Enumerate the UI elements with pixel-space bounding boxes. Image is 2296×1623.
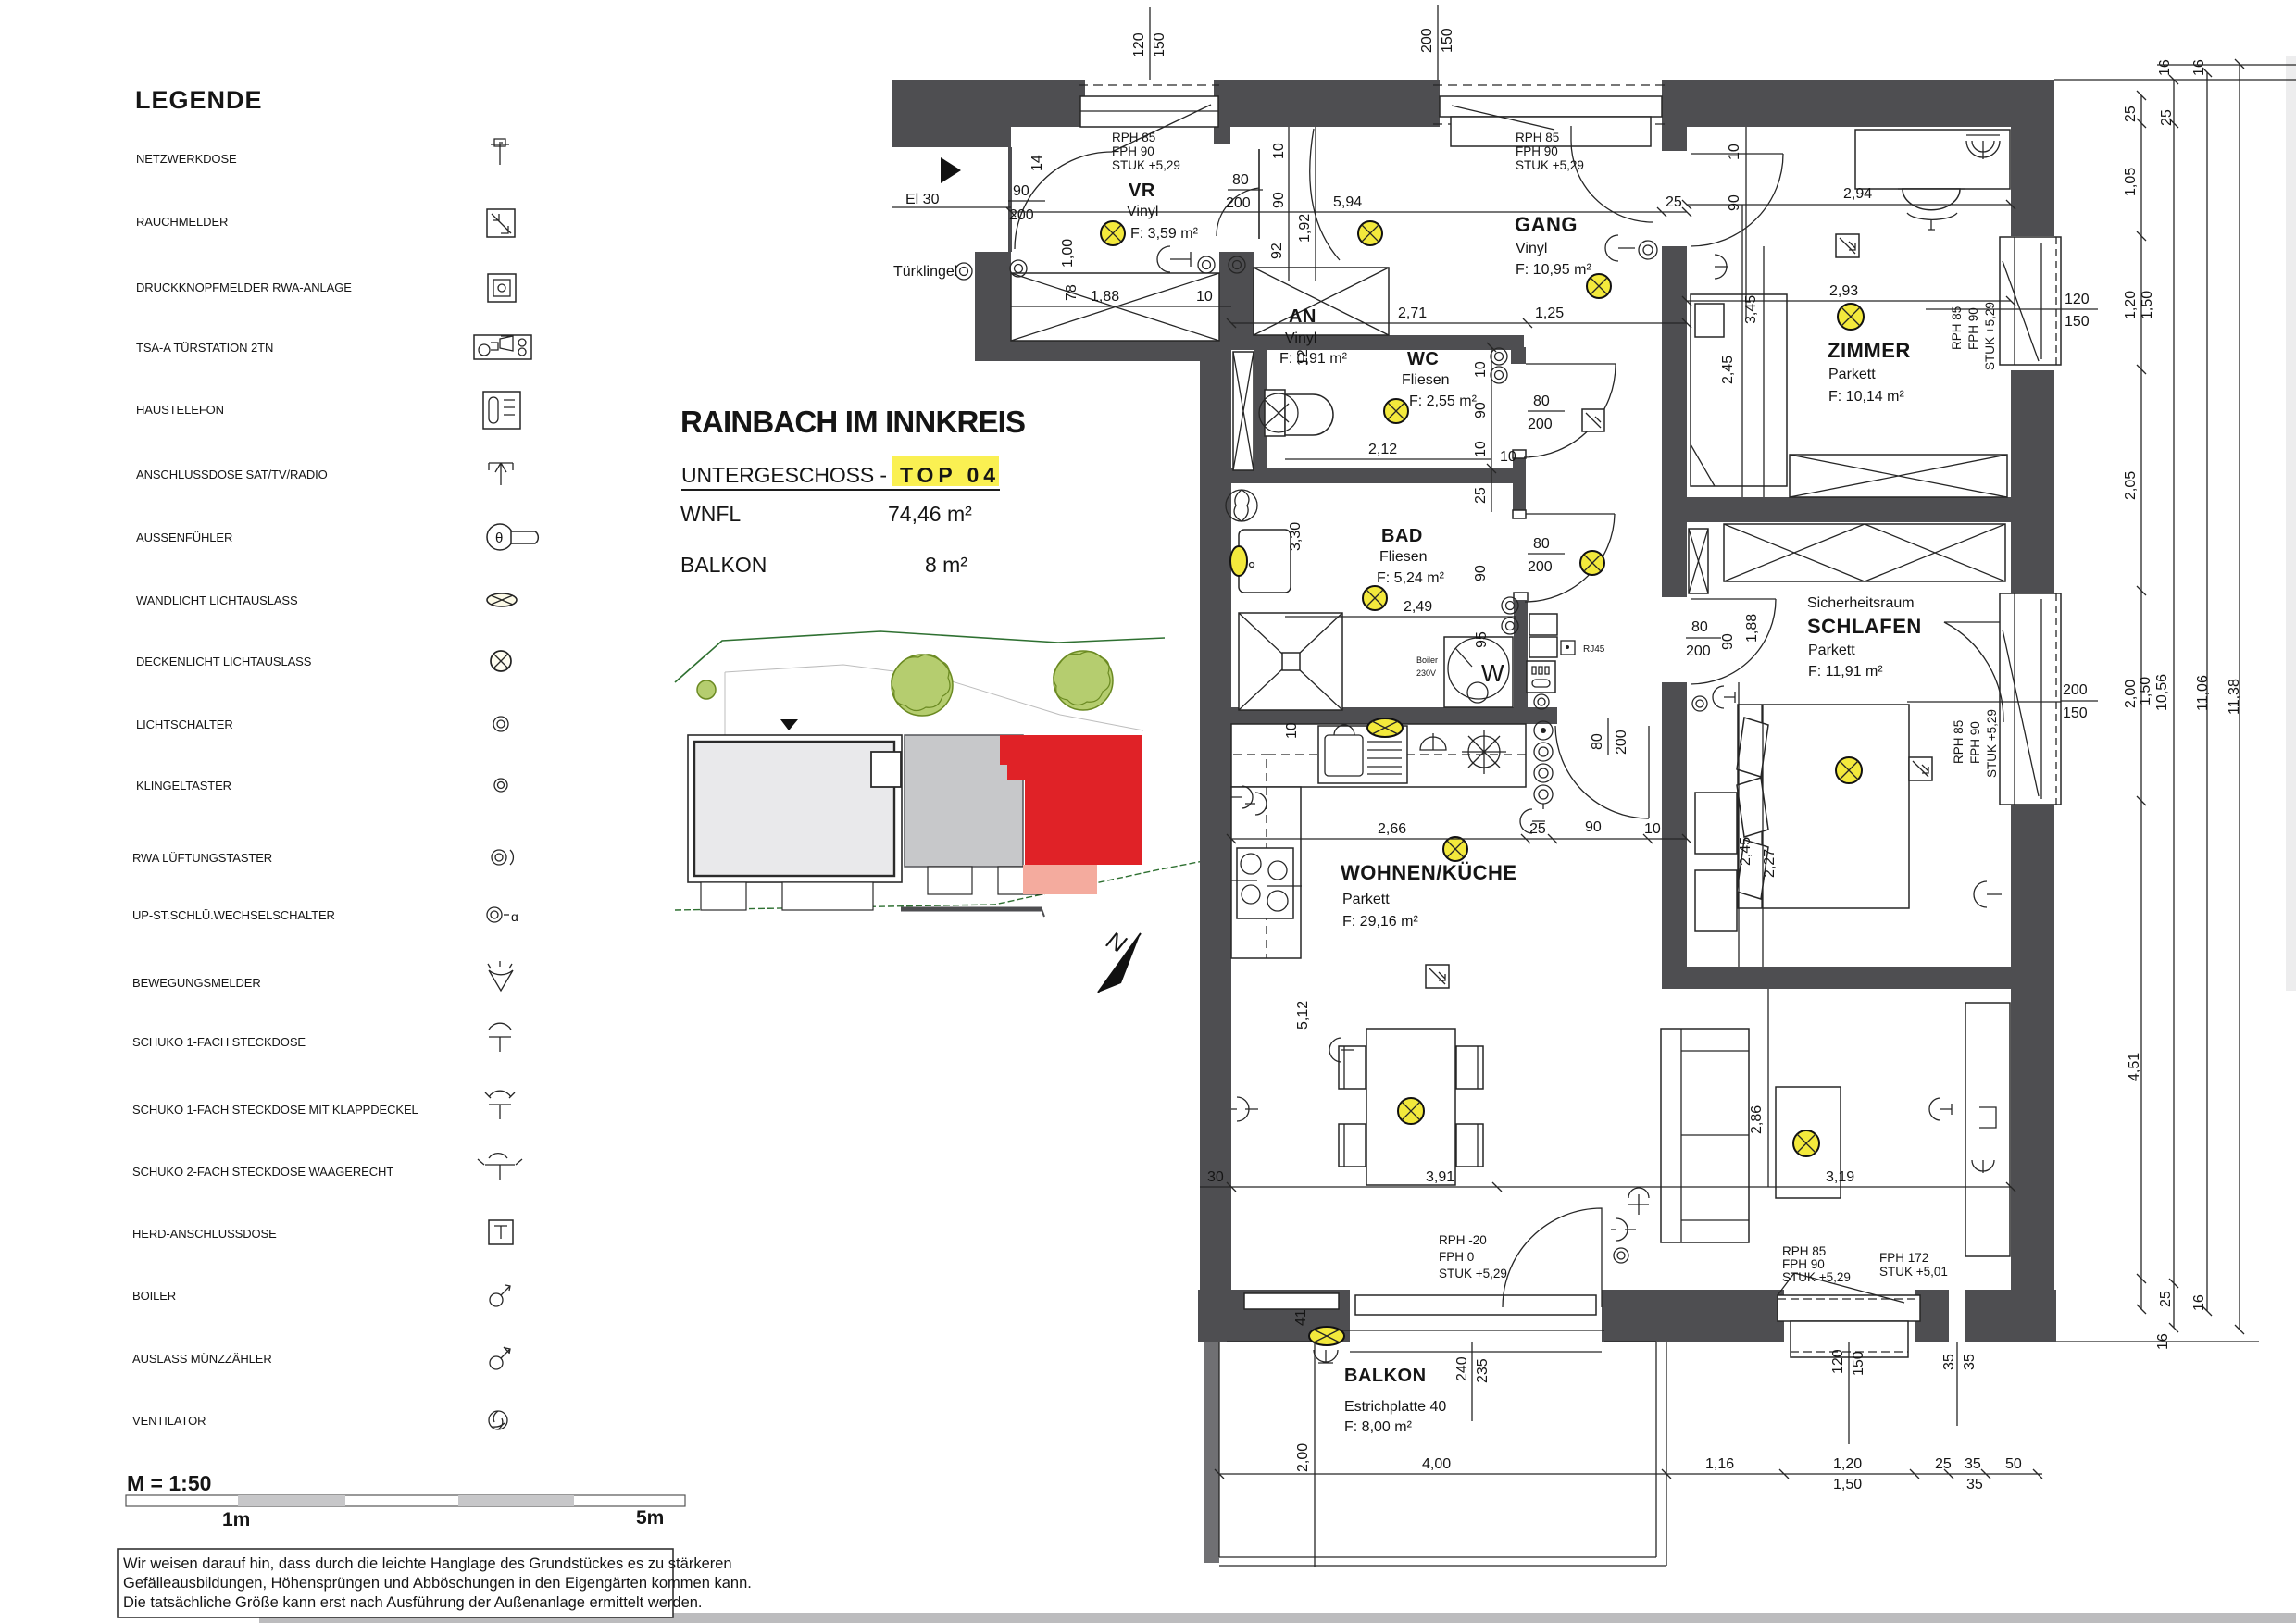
svg-text:150: 150: [1152, 32, 1167, 57]
svg-text:95: 95: [1474, 631, 1490, 648]
svg-text:FPH 90: FPH 90: [1968, 721, 1982, 764]
svg-text:RPH 85: RPH 85: [1950, 306, 1964, 350]
svg-text:HAUSTELEFON: HAUSTELEFON: [136, 403, 224, 417]
svg-text:3,30: 3,30: [1288, 522, 1304, 551]
svg-text:10: 10: [1727, 144, 1742, 160]
svg-text:VENTILATOR: VENTILATOR: [132, 1414, 206, 1428]
svg-text:74,46 m²: 74,46 m²: [888, 502, 972, 526]
svg-text:Vinyl: Vinyl: [1127, 204, 1158, 219]
svg-text:WNFL: WNFL: [680, 502, 741, 526]
svg-text:80: 80: [1232, 172, 1249, 188]
svg-text:Estrichplatte 40: Estrichplatte 40: [1344, 1399, 1446, 1415]
svg-text:90: 90: [1585, 819, 1602, 835]
svg-text:35: 35: [1966, 1477, 1983, 1492]
svg-text:1,25: 1,25: [1535, 306, 1564, 321]
svg-text:2,93: 2,93: [1829, 283, 1858, 299]
svg-text:FPH 172: FPH 172: [1879, 1251, 1928, 1265]
svg-text:STUK +5,29: STUK +5,29: [1112, 158, 1180, 172]
svg-text:2,66: 2,66: [1378, 821, 1406, 837]
svg-text:1,00: 1,00: [1060, 239, 1076, 268]
svg-text:1,20: 1,20: [2123, 291, 2139, 319]
svg-text:GANG: GANG: [1515, 213, 1578, 236]
svg-text:Vinyl: Vinyl: [1285, 331, 1316, 346]
svg-text:25: 25: [2159, 109, 2175, 126]
svg-text:Fliesen: Fliesen: [1379, 549, 1428, 565]
svg-text:RPH 85: RPH 85: [1952, 720, 1965, 764]
svg-text:1,05: 1,05: [2123, 168, 2139, 196]
svg-text:1,20: 1,20: [1833, 1456, 1862, 1472]
svg-text:Parkett: Parkett: [1828, 367, 1876, 382]
svg-text:SCHUKO 2-FACH STECKDOSE WAAGER: SCHUKO 2-FACH STECKDOSE WAAGERECHT: [132, 1165, 393, 1179]
svg-text:F: 0,91 m²: F: 0,91 m²: [1279, 351, 1348, 367]
svg-text:92: 92: [1269, 243, 1285, 259]
svg-text:M = 1:50: M = 1:50: [127, 1471, 211, 1495]
svg-text:LEGENDE: LEGENDE: [135, 86, 263, 114]
svg-text:W: W: [1481, 659, 1504, 687]
svg-text:STUK +5,29: STUK +5,29: [1983, 302, 1997, 370]
svg-text:2,45: 2,45: [1738, 837, 1753, 866]
svg-text:WOHNEN/KÜCHE: WOHNEN/KÜCHE: [1341, 861, 1517, 884]
svg-text:2,71: 2,71: [1398, 306, 1427, 321]
svg-text:RPH 85: RPH 85: [1112, 131, 1155, 144]
svg-text:90: 90: [1013, 183, 1029, 199]
svg-text:θ: θ: [495, 531, 503, 546]
svg-text:25: 25: [2158, 1291, 2174, 1307]
svg-text:F: 3,59 m²: F: 3,59 m²: [1130, 226, 1199, 242]
svg-text:200: 200: [1419, 28, 1435, 53]
svg-text:STUK +5,01: STUK +5,01: [1879, 1265, 1948, 1279]
svg-text:35: 35: [1965, 1456, 1981, 1472]
svg-text:ɑ: ɑ: [511, 909, 518, 924]
svg-text:10: 10: [1473, 361, 1489, 378]
svg-text:F: 2,55 m²: F: 2,55 m²: [1409, 393, 1478, 409]
svg-text:3,91: 3,91: [1426, 1169, 1454, 1185]
svg-text:SCHUKO 1-FACH STECKDOSE MIT KL: SCHUKO 1-FACH STECKDOSE MIT KLAPPDECKEL: [132, 1103, 418, 1117]
svg-text:Die tatsächliche Größe kann er: Die tatsächliche Größe kann erst nach Au…: [123, 1594, 703, 1611]
svg-text:1,88: 1,88: [1091, 289, 1119, 305]
svg-text:Boiler: Boiler: [1416, 655, 1438, 665]
svg-text:78: 78: [1064, 284, 1079, 301]
svg-text:ANSCHLUSSDOSE SAT/TV/RADIO: ANSCHLUSSDOSE SAT/TV/RADIO: [136, 468, 328, 481]
svg-text:200: 200: [1009, 207, 1034, 223]
svg-text:10: 10: [1196, 289, 1213, 305]
svg-text:Fliesen: Fliesen: [1402, 372, 1450, 388]
svg-text:25: 25: [1666, 194, 1682, 210]
svg-text:90: 90: [1720, 633, 1736, 650]
svg-text:2,27: 2,27: [1762, 849, 1778, 878]
svg-text:LICHTSCHALTER: LICHTSCHALTER: [136, 718, 233, 731]
svg-text:2,12: 2,12: [1368, 442, 1397, 457]
svg-text:STUK +5,29: STUK +5,29: [1516, 158, 1584, 172]
svg-text:F: 10,14 m²: F: 10,14 m²: [1828, 389, 1904, 405]
svg-text:RJ45: RJ45: [1583, 644, 1605, 655]
svg-text:F: 11,91 m²: F: 11,91 m²: [1808, 664, 1883, 680]
svg-text:200: 200: [1528, 417, 1553, 432]
svg-text:F: 5,24 m²: F: 5,24 m²: [1377, 570, 1445, 586]
svg-text:HERD-ANSCHLUSSDOSE: HERD-ANSCHLUSSDOSE: [132, 1227, 277, 1241]
svg-text:El 30: El 30: [905, 192, 940, 207]
svg-text:120: 120: [1131, 32, 1147, 57]
svg-text:10: 10: [1473, 441, 1489, 457]
svg-text:4,51: 4,51: [2127, 1053, 2142, 1081]
svg-text:TSA-A TÜRSTATION 2TN: TSA-A TÜRSTATION 2TN: [136, 341, 273, 355]
svg-text:2,86: 2,86: [1749, 1105, 1765, 1134]
svg-text:WANDLICHT LICHTAUSLASS: WANDLICHT LICHTAUSLASS: [136, 593, 298, 607]
svg-text:5,94: 5,94: [1333, 194, 1362, 210]
svg-text:BALKON: BALKON: [680, 553, 767, 577]
svg-text:16: 16: [2157, 59, 2173, 76]
svg-text:F: 29,16 m²: F: 29,16 m²: [1342, 914, 1418, 930]
svg-text:80: 80: [1691, 619, 1708, 635]
svg-text:35: 35: [1962, 1354, 1978, 1370]
svg-text:STUK +5,29: STUK +5,29: [1985, 709, 1999, 778]
svg-text:BALKON: BALKON: [1344, 1366, 1427, 1386]
svg-text:Wir weisen darauf hin, dass du: Wir weisen darauf hin, dass durch die le…: [123, 1555, 732, 1572]
svg-text:UNTERGESCHOSS -: UNTERGESCHOSS -: [681, 463, 887, 487]
svg-text:240: 240: [1454, 1356, 1470, 1381]
svg-text:90: 90: [1473, 565, 1489, 581]
svg-text:BAD: BAD: [1381, 526, 1423, 546]
svg-text:FPH 90: FPH 90: [1782, 1257, 1825, 1271]
svg-text:FPH 90: FPH 90: [1516, 144, 1558, 158]
svg-text:2,00: 2,00: [1295, 1443, 1311, 1472]
svg-text:10: 10: [1271, 143, 1287, 159]
svg-text:UP-ST.SCHLÜ.WECHSELSCHALTER: UP-ST.SCHLÜ.WECHSELSCHALTER: [132, 908, 335, 922]
svg-text:41: 41: [1293, 1309, 1309, 1326]
svg-text:80: 80: [1590, 733, 1605, 750]
svg-text:25: 25: [1473, 487, 1489, 504]
svg-text:50: 50: [2005, 1456, 2022, 1472]
svg-text:VR: VR: [1129, 181, 1155, 201]
svg-text:150: 150: [2065, 314, 2090, 330]
svg-text:F: 10,95 m²: F: 10,95 m²: [1516, 262, 1591, 278]
svg-text:1,16: 1,16: [1705, 1456, 1734, 1472]
svg-text:25: 25: [1935, 1456, 1952, 1472]
svg-text:1,50: 1,50: [2138, 677, 2153, 705]
svg-text:2,49: 2,49: [1404, 599, 1432, 615]
svg-text:Parkett: Parkett: [1808, 643, 1855, 658]
svg-text:14: 14: [1029, 155, 1045, 171]
svg-text:Sicherheitsraum: Sicherheitsraum: [1807, 595, 1915, 611]
svg-text:200: 200: [1614, 730, 1629, 755]
svg-text:200: 200: [1528, 559, 1553, 575]
svg-text:5m: 5m: [636, 1507, 664, 1529]
svg-text:AUSLASS MÜNZZÄHLER: AUSLASS MÜNZZÄHLER: [132, 1352, 272, 1366]
svg-text:Vinyl: Vinyl: [1516, 241, 1547, 256]
svg-text:11,06: 11,06: [2195, 675, 2211, 711]
svg-text:FPH 90: FPH 90: [1112, 144, 1154, 158]
svg-text:SCHLAFEN: SCHLAFEN: [1807, 615, 1922, 638]
svg-text:RAINBACH IM INNKREIS: RAINBACH IM INNKREIS: [680, 405, 1026, 439]
svg-text:10: 10: [1500, 449, 1516, 465]
svg-text:RPH -20: RPH -20: [1439, 1233, 1487, 1247]
svg-text:10,56: 10,56: [2154, 674, 2170, 711]
svg-text:80: 80: [1533, 393, 1550, 409]
svg-text:AUSSENFÜHLER: AUSSENFÜHLER: [136, 531, 232, 544]
svg-text:BEWEGUNGSMELDER: BEWEGUNGSMELDER: [132, 976, 261, 990]
svg-text:2,00: 2,00: [2123, 680, 2139, 708]
svg-text:STUK +5,29: STUK +5,29: [1439, 1267, 1507, 1280]
svg-text:Gefälleausbildungen, Höhensprü: Gefälleausbildungen, Höhensprüngen und A…: [123, 1575, 752, 1592]
svg-text:235: 235: [1475, 1358, 1491, 1383]
svg-text:RPH 85: RPH 85: [1782, 1244, 1826, 1258]
svg-text:Parkett: Parkett: [1342, 892, 1390, 907]
svg-text:BOILER: BOILER: [132, 1289, 176, 1303]
svg-text:80: 80: [1533, 536, 1550, 552]
svg-text:16: 16: [2191, 1294, 2207, 1311]
svg-text:KLINGELTASTER: KLINGELTASTER: [136, 779, 231, 793]
svg-text:SCHUKO 1-FACH STECKDOSE: SCHUKO 1-FACH STECKDOSE: [132, 1035, 306, 1049]
svg-text:16: 16: [2191, 59, 2207, 76]
svg-text:35: 35: [1941, 1354, 1957, 1370]
svg-text:90: 90: [1271, 192, 1287, 208]
svg-text:F: 8,00 m²: F: 8,00 m²: [1344, 1419, 1413, 1435]
svg-text:150: 150: [1440, 28, 1455, 53]
svg-text:3,19: 3,19: [1826, 1169, 1854, 1185]
svg-text:10: 10: [1284, 722, 1300, 739]
svg-text:120: 120: [2065, 292, 2090, 307]
svg-text:150: 150: [2063, 705, 2088, 721]
svg-text:FPH 90: FPH 90: [1966, 307, 1980, 350]
svg-text:DECKENLICHT LICHTAUSLASS: DECKENLICHT LICHTAUSLASS: [136, 655, 312, 668]
svg-text:150: 150: [1851, 1351, 1866, 1376]
svg-text:120: 120: [1830, 1349, 1846, 1374]
svg-text:STUK +5,29: STUK +5,29: [1782, 1270, 1851, 1284]
svg-text:5,12: 5,12: [1295, 1001, 1311, 1030]
svg-text:200: 200: [1686, 643, 1711, 659]
svg-text:1,50: 1,50: [1833, 1477, 1862, 1492]
svg-text:2,45: 2,45: [1720, 356, 1736, 384]
svg-text:2,94: 2,94: [1843, 186, 1872, 202]
svg-text:Türklingel: Türklingel: [893, 264, 957, 280]
svg-text:FPH 0: FPH 0: [1439, 1250, 1474, 1264]
svg-text:1m: 1m: [222, 1509, 250, 1530]
svg-text:8 m²: 8 m²: [925, 553, 967, 577]
svg-text:RPH 85: RPH 85: [1516, 131, 1559, 144]
svg-text:WC: WC: [1407, 349, 1439, 369]
svg-text:ZIMMER: ZIMMER: [1828, 339, 1911, 362]
svg-text:30: 30: [1207, 1169, 1224, 1185]
svg-text:1,88: 1,88: [1744, 614, 1760, 643]
svg-text:90: 90: [1727, 194, 1742, 211]
svg-text:11,38: 11,38: [2227, 679, 2242, 715]
svg-text:1,92: 1,92: [1297, 214, 1313, 243]
svg-text:2,05: 2,05: [2123, 471, 2139, 500]
svg-text:25: 25: [2123, 106, 2139, 122]
svg-text:AN: AN: [1289, 306, 1316, 327]
svg-text:4,00: 4,00: [1422, 1456, 1451, 1472]
svg-text:3,45: 3,45: [1743, 295, 1759, 324]
svg-text:DRUCKKNOPFMELDER RWA-ANLAGE: DRUCKKNOPFMELDER RWA-ANLAGE: [136, 281, 352, 294]
svg-text:230V: 230V: [1416, 668, 1436, 678]
svg-text:200: 200: [2063, 682, 2088, 698]
svg-text:NETZWERKDOSE: NETZWERKDOSE: [136, 152, 237, 166]
svg-text:RWA LÜFTUNGSTASTER: RWA LÜFTUNGSTASTER: [132, 851, 272, 865]
svg-text:200: 200: [1226, 195, 1251, 211]
svg-text:1,50: 1,50: [2140, 291, 2155, 319]
svg-text:25: 25: [1529, 821, 1546, 837]
svg-text:10: 10: [1644, 821, 1661, 837]
svg-text:RAUCHMELDER: RAUCHMELDER: [136, 215, 228, 229]
